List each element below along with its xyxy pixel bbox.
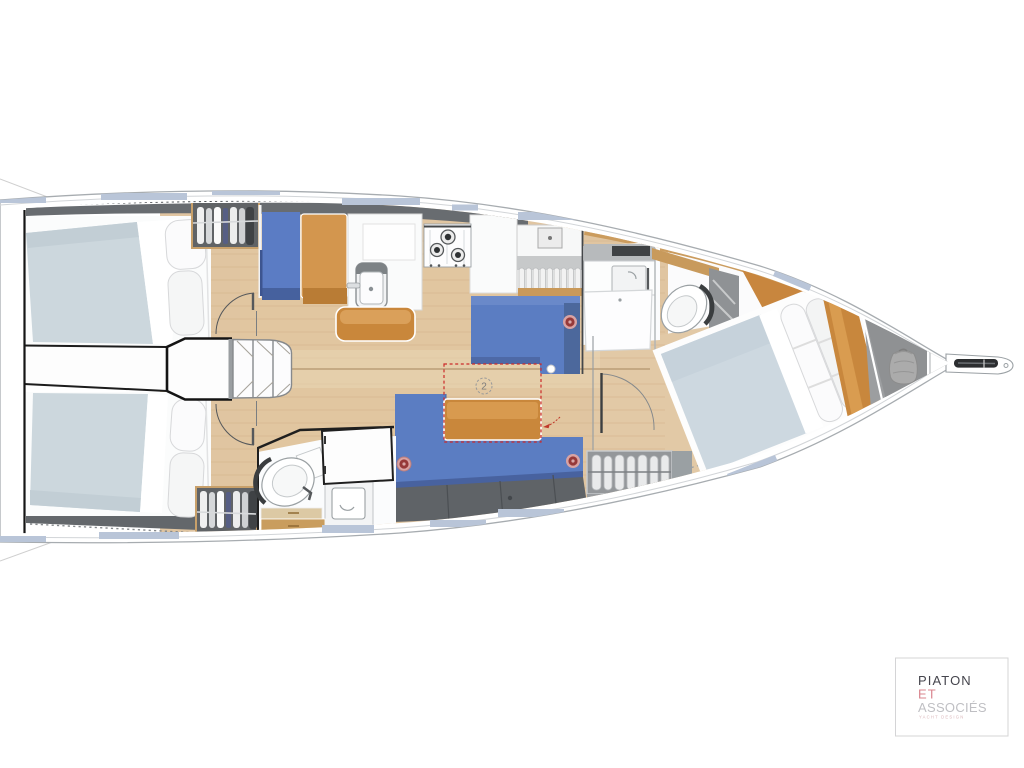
svg-text:ASSOCIÉS: ASSOCIÉS: [918, 700, 987, 715]
svg-text:2: 2: [481, 382, 487, 393]
svg-text:YACHT DESIGN: YACHT DESIGN: [919, 715, 964, 720]
